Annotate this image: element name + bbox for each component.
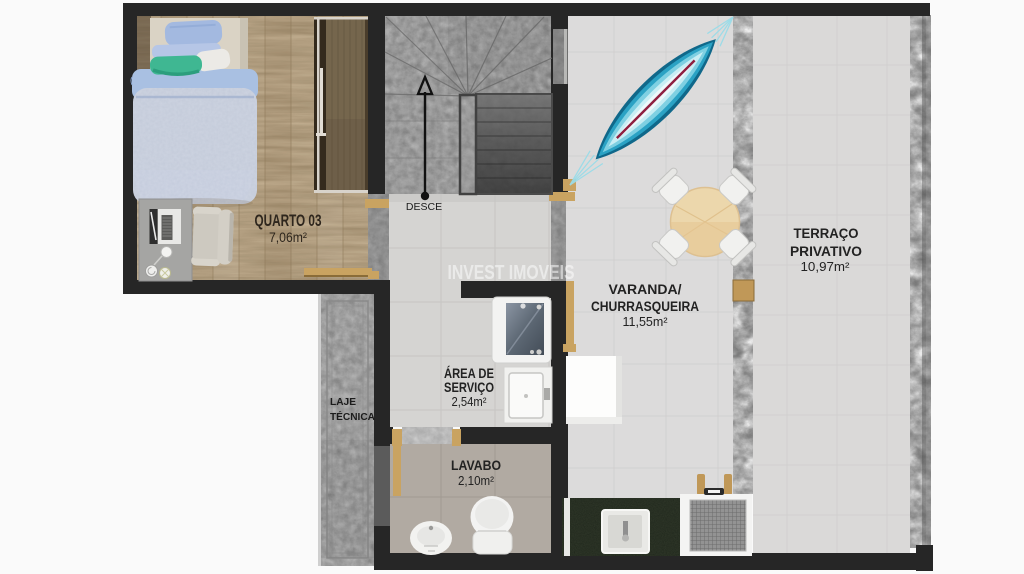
svg-text:TERRAÇO: TERRAÇO (794, 226, 859, 241)
svg-text:DESCE: DESCE (406, 201, 442, 213)
svg-text:7,06m²: 7,06m² (269, 230, 307, 245)
svg-text:2,10m²: 2,10m² (458, 474, 494, 488)
svg-text:11,55m²: 11,55m² (623, 315, 668, 329)
svg-text:TÉCNICA: TÉCNICA (330, 410, 375, 423)
svg-text:LAJE: LAJE (330, 396, 356, 408)
svg-text:QUARTO 03: QUARTO 03 (255, 212, 322, 230)
svg-text:LAVABO: LAVABO (451, 457, 501, 473)
svg-text:INVEST IMOVEIS: INVEST IMOVEIS (448, 261, 575, 284)
svg-text:10,97m²: 10,97m² (801, 260, 850, 274)
svg-text:CHURRASQUEIRA: CHURRASQUEIRA (591, 299, 699, 314)
svg-text:SERVIÇO: SERVIÇO (444, 379, 494, 395)
svg-text:VARANDA/: VARANDA/ (609, 282, 682, 297)
svg-text:PRIVATIVO: PRIVATIVO (790, 244, 862, 259)
svg-text:2,54m²: 2,54m² (452, 395, 487, 409)
